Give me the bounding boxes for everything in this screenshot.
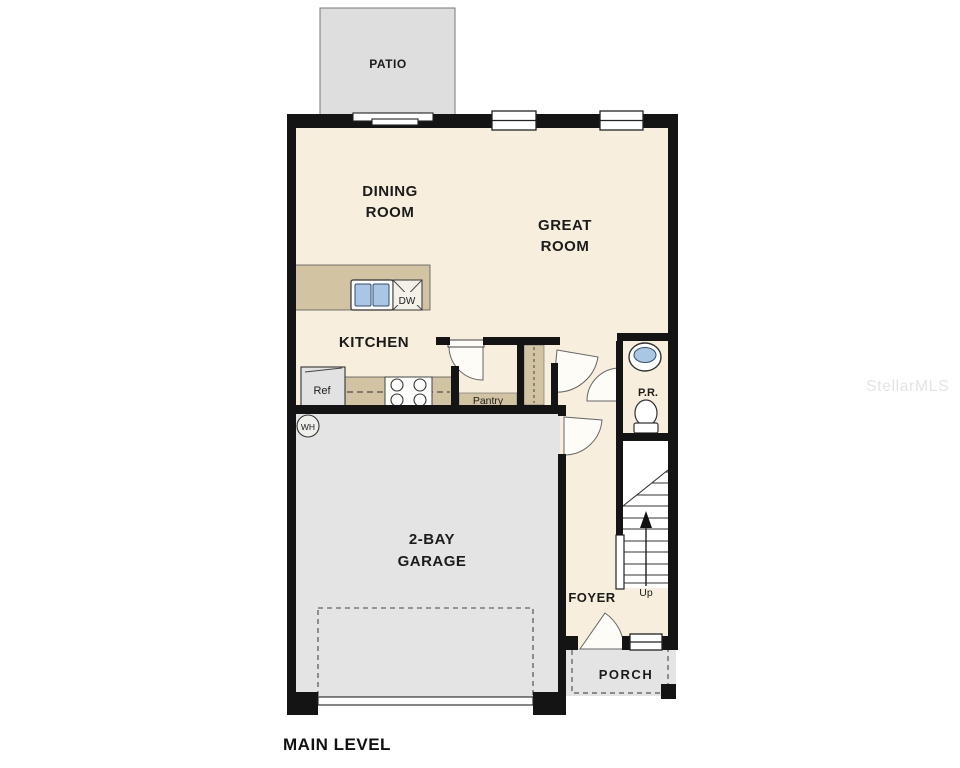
wall-closet-right [551,363,558,405]
wall-pr-top [617,333,678,341]
wall-foyer-bottom-left [558,636,578,650]
wall-pr-bottom [623,433,668,441]
slider-panel-inner [372,119,418,125]
wall-garage-stub-right [533,692,566,715]
powder-room-label: P.R. [638,387,658,399]
wall-garage-stub-left [287,692,318,715]
wall-right [668,114,678,650]
dining-room-label-1: DINING [362,183,418,200]
wall-stub-kitchen [436,337,450,345]
wall-hall-upper [558,405,566,416]
wall-pantry-left [451,366,459,408]
garage-door-panel [318,697,533,705]
pantry-label: Pantry [473,395,504,407]
great-room-label-2: ROOM [541,238,590,255]
dining-room-label-2: ROOM [366,204,415,221]
floor-plan-page: PATIO DINING ROOM GREAT ROOM KITCHEN Pan… [0,0,960,768]
staircase [616,440,668,589]
stair-railing [616,535,624,589]
wall-pr-stairs-left [616,341,623,535]
main-level-title: MAIN LEVEL [283,735,391,754]
wall-foyer-bottom-mid [622,636,630,650]
kitchen-label: KITCHEN [339,334,409,351]
garage-label-2: GARAGE [398,553,467,570]
refrigerator-label: Ref [313,385,331,397]
sink-basin-right [373,284,389,306]
stove [385,377,432,407]
sink-basin-left [355,284,371,306]
porch-label: PORCH [599,667,653,682]
dishwasher-label: DW [399,296,416,307]
garage-label-1: 2-BAY [409,531,455,548]
water-heater-label: WH [301,422,315,432]
pantry-door-leaf [448,340,484,347]
wall-above-pantry [483,337,560,345]
wall-left [287,114,296,715]
porch-post [661,684,676,699]
wall-foyer-bottom-right [662,636,678,650]
patio-label: PATIO [369,57,406,71]
wall-kitchen-garage [287,405,558,414]
floor-plan-drawing: PATIO DINING ROOM GREAT ROOM KITCHEN Pan… [0,0,960,768]
island-sink [351,280,393,310]
up-label: Up [639,587,653,599]
wall-pantry-closet [517,345,524,405]
wall-hall-lower [558,454,566,715]
foyer-label: FOYER [568,590,615,605]
great-room-label-1: GREAT [538,217,592,234]
watermark: StellarMLS [866,378,949,395]
powder-room-sink [629,343,661,371]
toilet [634,400,658,433]
